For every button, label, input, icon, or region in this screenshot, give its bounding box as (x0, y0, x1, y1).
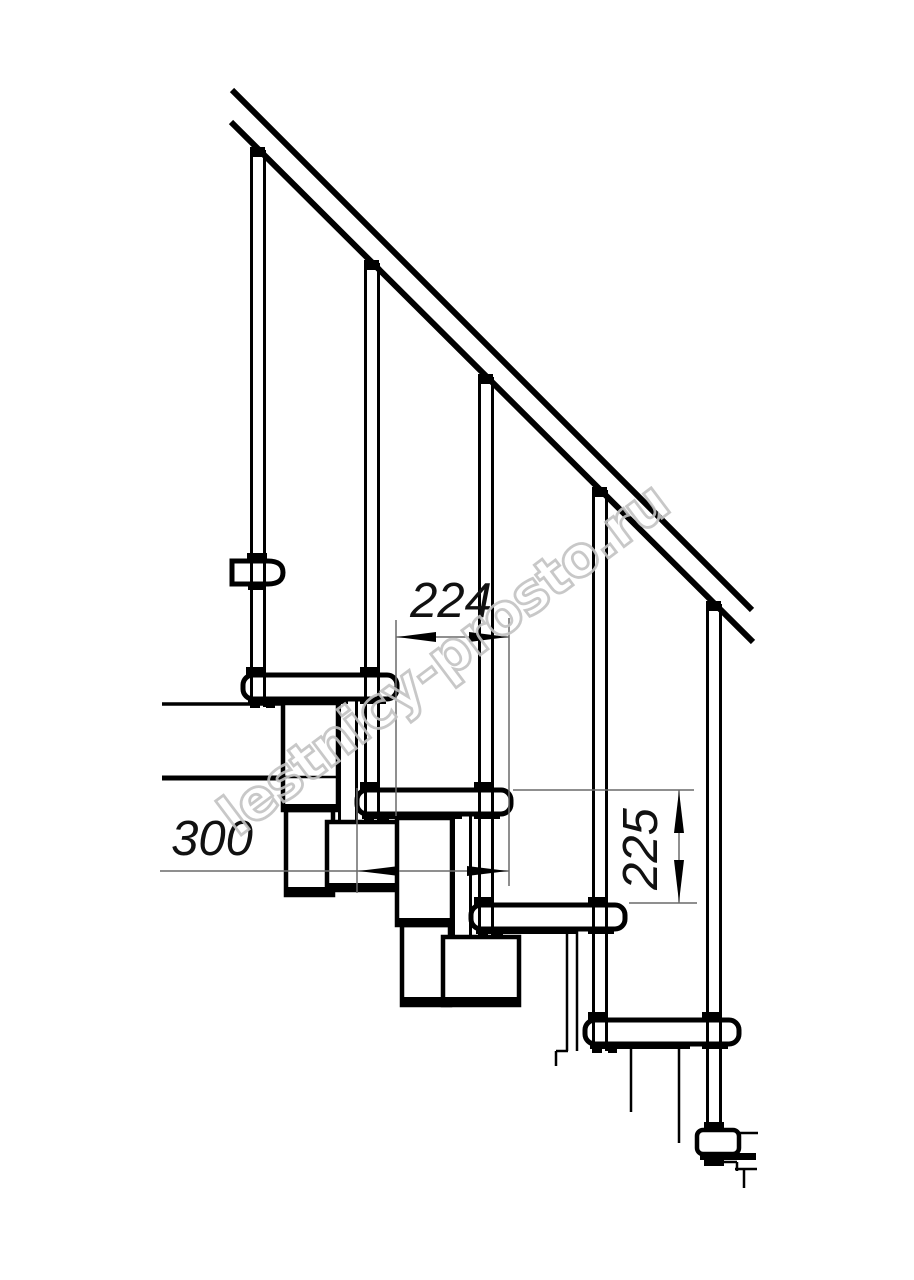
arrowhead-up (674, 791, 684, 833)
landing-edge-tread (232, 561, 283, 590)
staircase-technical-drawing: 224 300 225 lestnicy-prosto.ru (0, 0, 914, 1280)
dimension-label-rise: 225 (614, 807, 668, 891)
module-box-foot (327, 883, 405, 891)
tread (585, 1020, 739, 1053)
baluster (252, 150, 265, 707)
baluster (708, 604, 721, 1131)
module-box (327, 822, 405, 890)
tread (471, 905, 625, 938)
tread (357, 790, 511, 823)
module-box (443, 937, 519, 1005)
arrowhead-down (674, 860, 684, 902)
arrowhead-right (467, 866, 508, 876)
module-box-foot (397, 918, 452, 925)
staircase-drawing-svg: 224 300 225 lestnicy-prosto.ru (0, 0, 914, 1280)
module-box-foot (443, 997, 519, 1005)
baluster-foot (697, 1130, 758, 1188)
